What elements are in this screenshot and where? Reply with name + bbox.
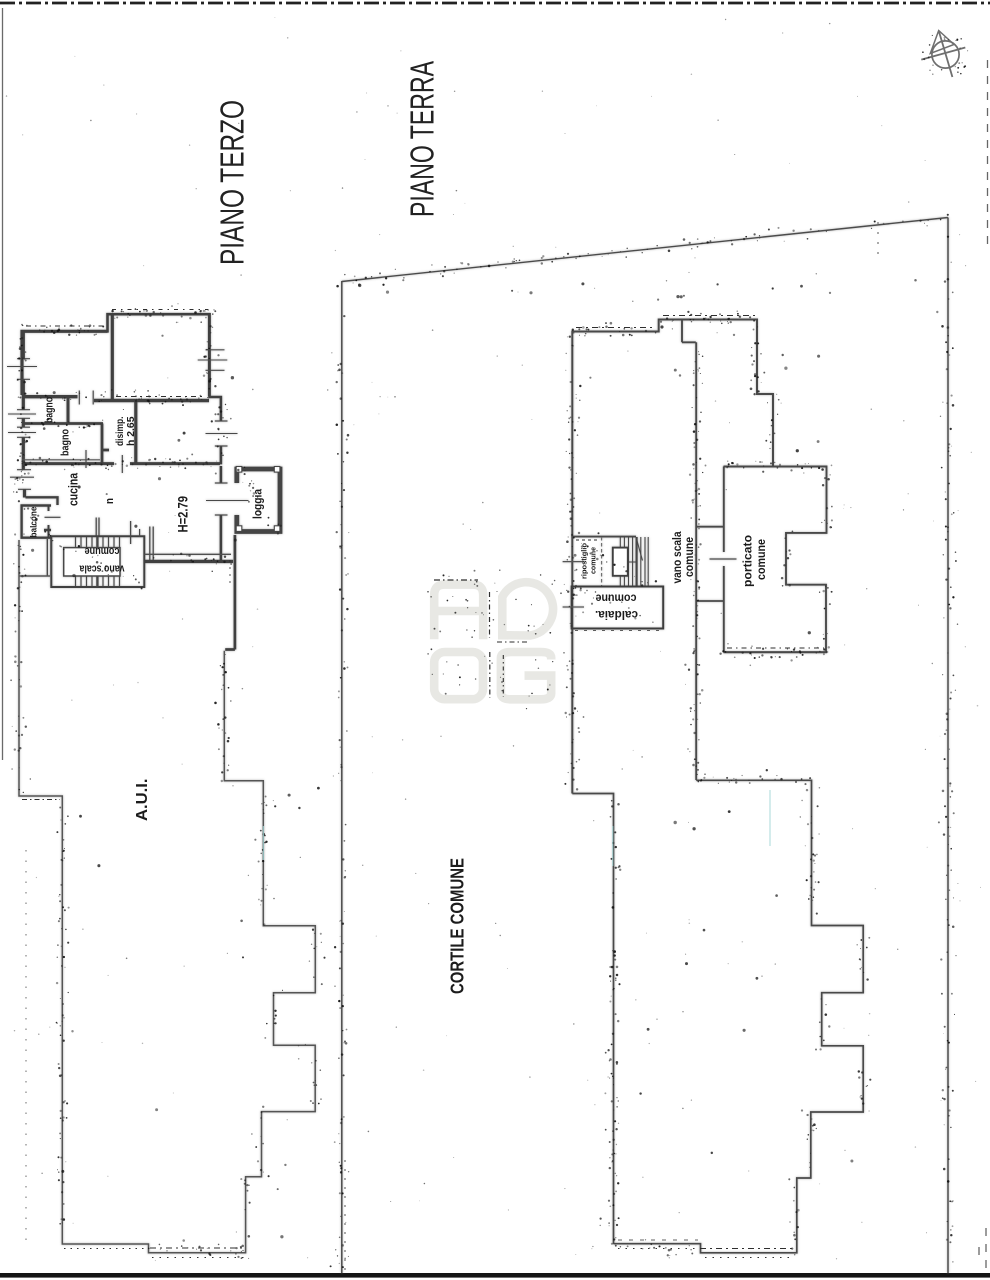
svg-text:ripostiglio: ripostiglio [580,542,589,579]
svg-text:comune: comune [684,537,696,577]
svg-text:vano scala: vano scala [672,531,684,584]
svg-text:PIANO TERRA: PIANO TERRA [404,61,441,217]
svg-text:comune: comune [595,592,636,606]
svg-text:vano scala: vano scala [79,563,125,575]
svg-text:balcone: balcone [29,507,40,538]
svg-text:caldaia.: caldaia. [595,608,638,622]
svg-text:bagno: bagno [44,397,56,423]
svg-text:cucina: cucina [66,472,81,506]
svg-text:comune: comune [85,545,120,557]
svg-text:h 2.65: h 2.65 [125,416,137,446]
svg-text:bagno: bagno [60,429,72,456]
svg-text:comune: comune [589,547,598,574]
svg-text:H=2.79: H=2.79 [175,496,191,533]
svg-text:comune: comune [756,539,768,580]
svg-text:CORTILE COMUNE: CORTILE COMUNE [447,858,468,994]
svg-text:porticato: porticato [743,535,755,587]
svg-text:A.U.I.: A.U.I. [134,779,151,822]
svg-text:n: n [104,498,116,504]
svg-text:PIANO TERZO: PIANO TERZO [214,100,251,265]
